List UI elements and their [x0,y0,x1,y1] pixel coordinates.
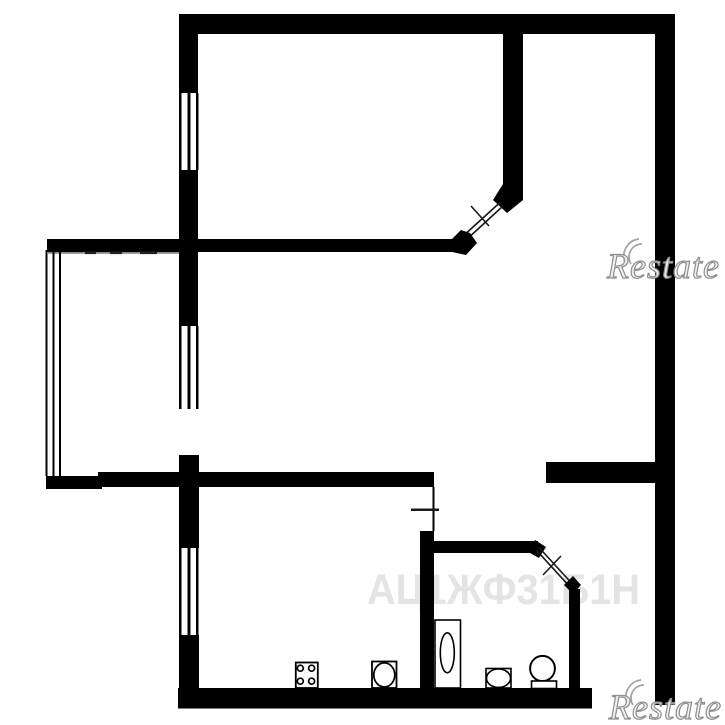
svg-text:АЦ1ЖФ31Б1Н: АЦ1ЖФ31Б1Н [367,566,640,614]
svg-text:Restate: Restate [608,687,722,725]
svg-text:Restate: Restate [606,246,720,286]
